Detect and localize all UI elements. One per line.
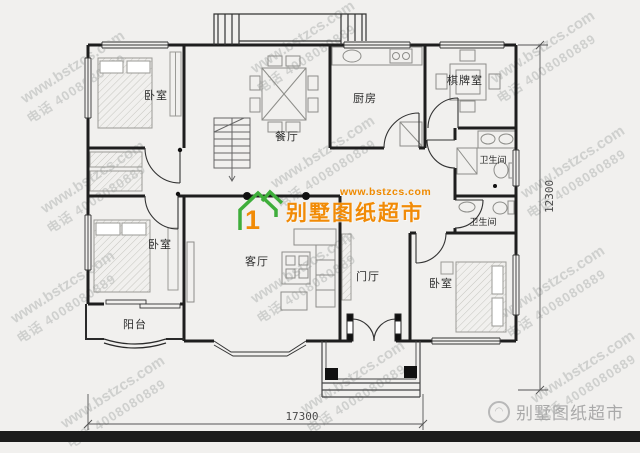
room-label-bedroom-2: 卧室 bbox=[148, 237, 172, 251]
living-room-bay-window bbox=[214, 341, 306, 356]
dimension-height-label: 12300 bbox=[543, 180, 556, 213]
room-label-mahjong: 棋牌室 bbox=[447, 73, 483, 87]
floorplan-page: { "watermark": { "line1": "www.bstzcs.co… bbox=[0, 0, 640, 442]
room-label-dining: 餐厅 bbox=[275, 129, 299, 143]
staircase bbox=[214, 118, 250, 181]
room-label-bedroom-1: 卧室 bbox=[144, 88, 168, 102]
top-bay-window bbox=[214, 14, 366, 45]
room-label-living: 客厅 bbox=[245, 254, 269, 268]
room-label-kitchen: 厨房 bbox=[353, 92, 377, 105]
furniture-living-room bbox=[187, 229, 336, 310]
brand-circle-icon: ◠ bbox=[488, 401, 510, 423]
brand-watermark-name: 别墅图纸超市 bbox=[516, 399, 624, 424]
furniture-foyer bbox=[342, 234, 351, 300]
room-label-bathroom-1: 卫生间 bbox=[479, 154, 506, 165]
room-label-foyer: 门厅 bbox=[356, 269, 380, 283]
svg-text:1: 1 bbox=[245, 205, 260, 232]
fixtures-bathroom-2 bbox=[459, 201, 514, 214]
furniture-bedroom-2 bbox=[94, 220, 178, 292]
logo-brand-name: 别墅图纸超市 bbox=[286, 197, 431, 227]
footer-bar bbox=[0, 431, 640, 442]
room-label-bedroom-3: 卧室 bbox=[429, 276, 453, 290]
brand-watermark: ◠ 别墅图纸超市 bbox=[488, 399, 624, 424]
dimension-width-label: 17300 bbox=[285, 410, 318, 423]
house-logo-icon: 1 bbox=[236, 186, 284, 232]
room-label-balcony: 阳台 bbox=[123, 317, 147, 331]
furniture-dining bbox=[250, 56, 318, 132]
furniture-bedroom-3 bbox=[441, 262, 506, 332]
site-logo: 1 www.bstzcs.com 别墅图纸超市 bbox=[236, 186, 431, 232]
entrance-porch bbox=[322, 341, 420, 397]
furniture-bedroom-1 bbox=[90, 52, 181, 191]
furniture-kitchen bbox=[332, 47, 422, 146]
room-label-bathroom-2: 卫生间 bbox=[469, 216, 496, 227]
